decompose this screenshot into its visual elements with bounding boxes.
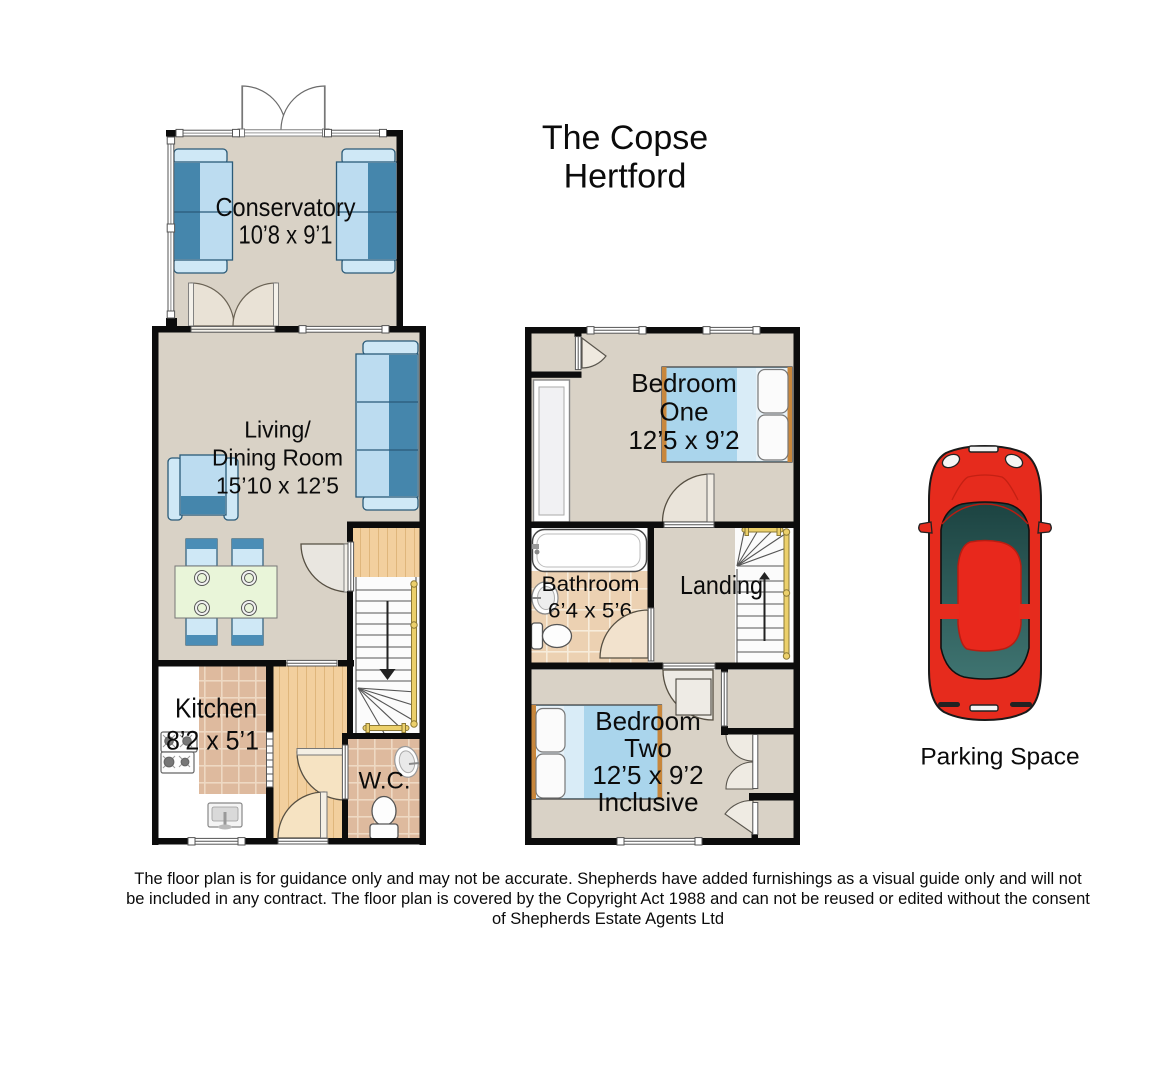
svg-text:Bedroom: Bedroom [631,368,737,398]
svg-text:Kitchen: Kitchen [175,693,257,724]
svg-text:Bathroom: Bathroom [542,573,640,596]
svg-text:Two: Two [624,733,672,763]
svg-text:10’8 x 9’1: 10’8 x 9’1 [239,220,333,250]
svg-text:of Shepherds Estate Agents Ltd: of Shepherds Estate Agents Ltd [492,910,724,928]
svg-text:15’10 x 12’5: 15’10 x 12’5 [216,473,339,499]
svg-text:be included in any contract. T: be included in any contract. The floor p… [126,890,1090,908]
svg-text:Landing: Landing [680,570,763,600]
svg-text:Dining Room: Dining Room [212,445,343,471]
svg-text:8’2 x 5’1: 8’2 x 5’1 [166,726,259,756]
svg-text:The floor plan is for guidance: The floor plan is for guidance only and … [134,870,1082,888]
svg-text:Conservatory: Conservatory [216,192,356,222]
svg-text:12’5 x 9’2: 12’5 x 9’2 [592,760,703,790]
svg-text:Living/: Living/ [244,416,311,442]
svg-text:W.C.: W.C. [359,768,411,795]
svg-text:Parking Space: Parking Space [920,744,1079,771]
svg-text:The Copse: The Copse [542,119,708,157]
svg-text:12’5 x 9’2: 12’5 x 9’2 [628,425,739,455]
svg-text:Hertford: Hertford [564,158,687,196]
svg-text:One: One [659,397,708,427]
svg-text:Inclusive: Inclusive [597,787,698,817]
